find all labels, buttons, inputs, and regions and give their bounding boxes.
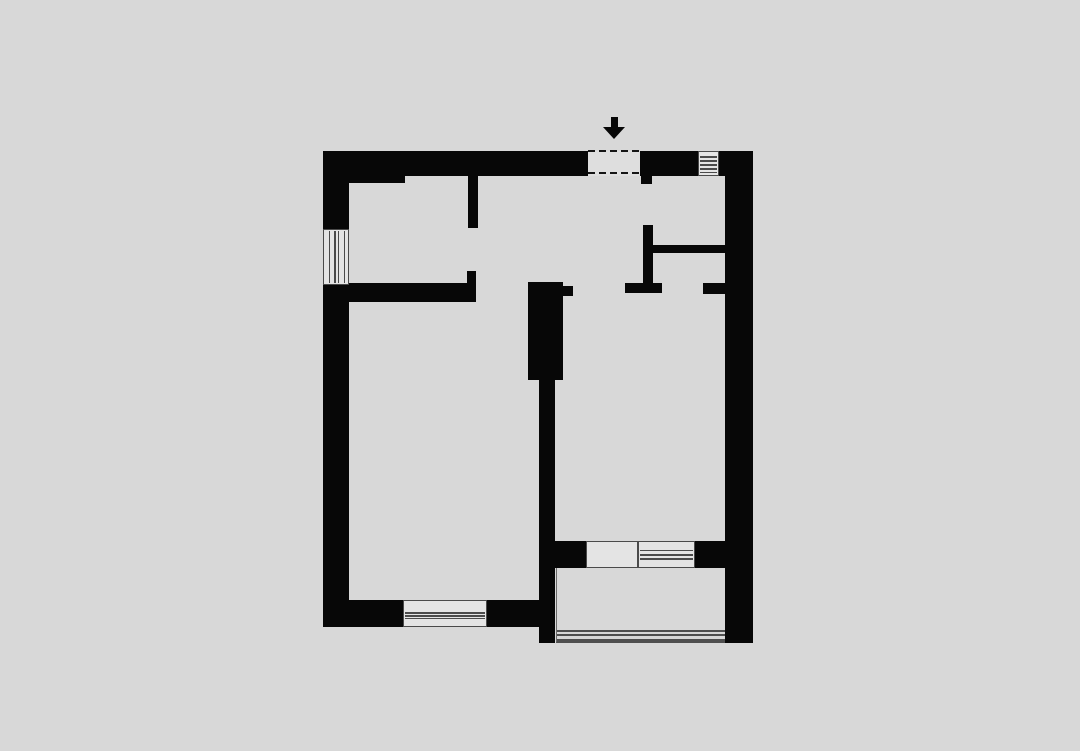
window-bottom-pane-line [405, 618, 485, 620]
central-column-notch [563, 286, 573, 296]
window-right-room-pane-line [640, 554, 693, 556]
window-left-pane-line [338, 231, 340, 283]
window-bottom-window [403, 600, 487, 627]
window-top-pane-line [700, 168, 717, 170]
wall-top-mid [640, 151, 698, 176]
window-right-room-pane-line [640, 550, 693, 552]
balcony-rail-line [557, 639, 725, 641]
window-top-pane-line [700, 164, 717, 166]
entrance-arrow-head-icon [603, 127, 625, 139]
central-column [528, 282, 563, 380]
wall-right [725, 151, 753, 643]
wall-bottom-left [323, 600, 403, 627]
window-bottom-pane-line [405, 612, 485, 614]
balcony [556, 568, 725, 643]
wall-balcony-band-right [695, 541, 725, 568]
floor-plan-canvas [0, 0, 1080, 751]
window-left-window [323, 229, 349, 285]
window-left-pane-line [329, 231, 331, 283]
window-top-window [698, 151, 719, 176]
window-right-room-pane-line [640, 558, 693, 560]
wall-closet-bottom [653, 245, 727, 253]
window-top-pane-line [700, 160, 717, 162]
balcony-door-window [586, 541, 638, 568]
window-left-pane-line [344, 231, 346, 283]
wall-doorway-stub-left [625, 283, 662, 293]
wall-central-vertical [539, 380, 555, 643]
wall-room1-bottom [349, 283, 475, 302]
window-top-pane-line [700, 156, 717, 158]
window-left-pane-line [334, 231, 336, 283]
window-right-room-window [638, 541, 695, 568]
entrance-dash-bottom [588, 172, 642, 174]
balcony-rail-line [557, 634, 725, 636]
window-bottom-pane-line [405, 615, 485, 617]
entry-door-stub [641, 176, 652, 184]
wall-balcony-band-left [555, 541, 586, 568]
entrance-dash-top [588, 150, 641, 152]
wall-left-upper [323, 151, 349, 229]
window-top-pane-line [700, 172, 717, 174]
partition-room1-upper [468, 176, 478, 228]
wall-left-lower [323, 285, 349, 627]
wall-doorway-stub-right [703, 283, 725, 294]
floor-plan [0, 0, 1080, 751]
balcony-rail-line [557, 630, 725, 632]
